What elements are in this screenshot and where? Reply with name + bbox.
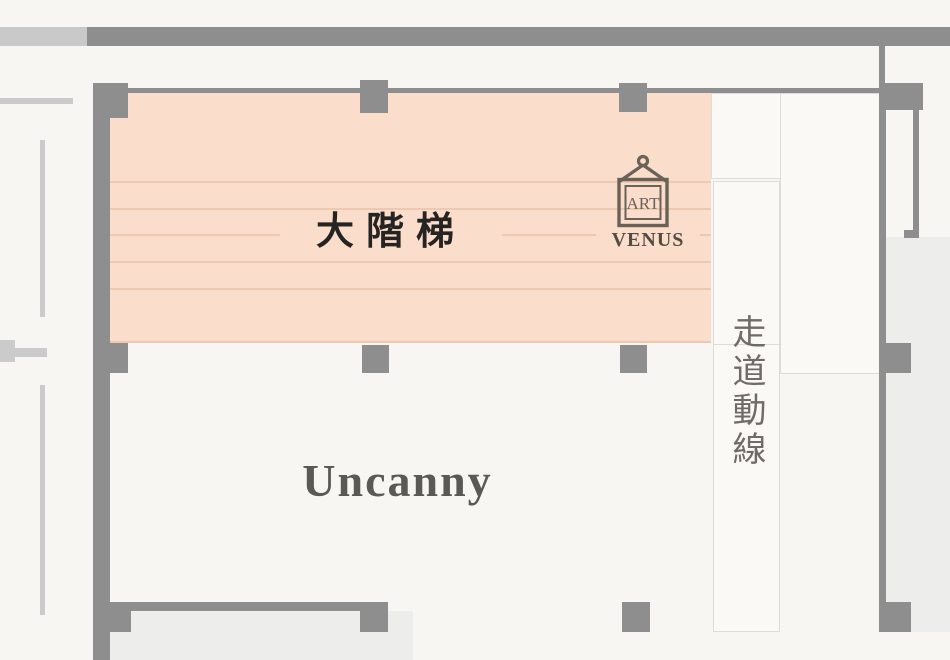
left-railing-lower — [40, 385, 45, 615]
column-bottom-right — [622, 602, 650, 632]
corridor-label: 走道動線 — [728, 314, 762, 470]
top-wall — [110, 88, 880, 93]
column-top-corner — [879, 83, 923, 110]
top-bar-light-segment — [0, 27, 87, 46]
column-bottom-corner — [879, 602, 911, 632]
stair-step-line — [110, 261, 711, 263]
right-side-area-fill — [886, 237, 950, 632]
artwork-frame-text: ART — [627, 194, 661, 213]
column-bottom-left — [110, 602, 131, 632]
column-mid-middle — [362, 345, 389, 373]
walkway-upper-box — [711, 93, 781, 179]
column-mid-wall-right — [879, 343, 911, 373]
left-fixture-arm — [15, 348, 47, 357]
left-fixture-block — [0, 340, 15, 362]
right-partition-foot — [904, 230, 919, 238]
column-top-left — [93, 83, 128, 118]
bottom-wall — [110, 602, 388, 611]
walkway-side-box — [780, 93, 880, 374]
left-exterior-ledge — [0, 98, 73, 104]
left-wall — [93, 83, 110, 660]
column-mid-right — [620, 345, 647, 373]
column-mid-left — [110, 343, 128, 373]
staircase-label: 大階梯 — [280, 212, 502, 254]
artwork-label: VENUS — [596, 228, 700, 252]
room-label: Uncanny — [245, 454, 550, 507]
stair-step-line — [110, 288, 711, 290]
column-bottom-middle — [360, 602, 388, 632]
artwork-frame-icon: ART — [613, 153, 673, 228]
top-bar-wall — [87, 27, 950, 46]
column-top-middle — [360, 80, 388, 113]
right-partition-wall — [913, 110, 919, 237]
left-railing-upper — [40, 140, 45, 317]
column-top-right — [619, 83, 647, 112]
floor-plan: 大階梯 ART VENUS 走道動線 Uncanny — [0, 0, 950, 660]
